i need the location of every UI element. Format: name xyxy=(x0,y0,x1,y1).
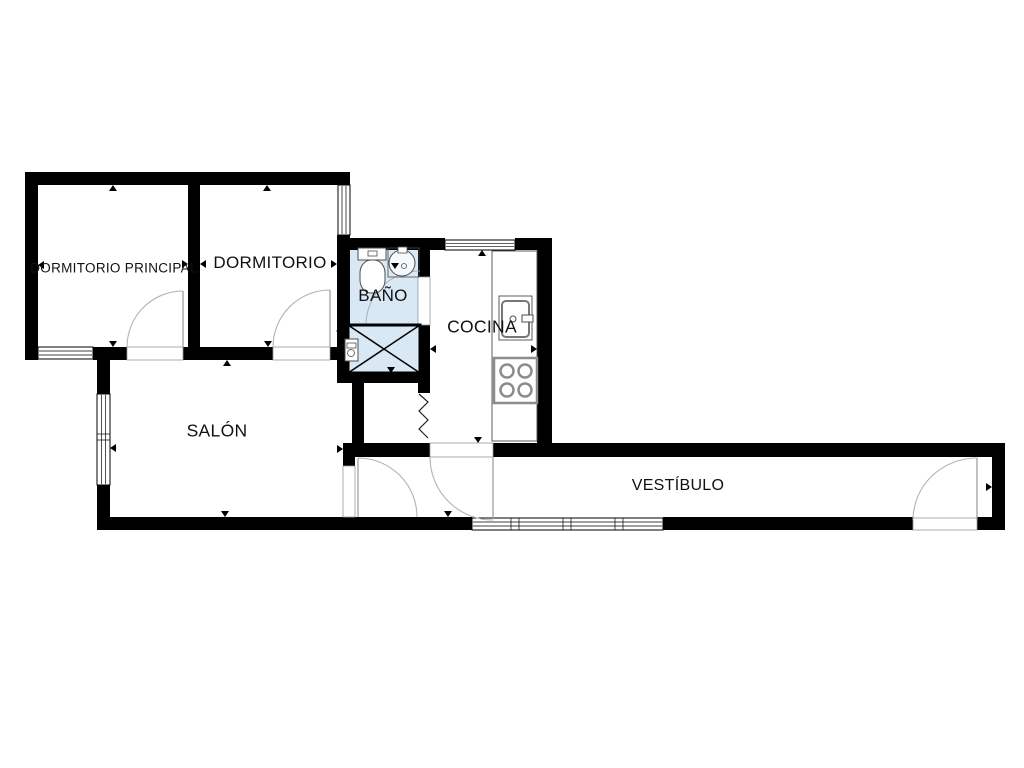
wall-segment xyxy=(25,347,38,360)
wall-marker xyxy=(986,483,992,491)
wall-segment xyxy=(343,443,430,457)
wall-segment xyxy=(97,517,472,530)
wall-segment xyxy=(343,443,355,467)
wall-marker xyxy=(430,345,436,353)
stove-icon xyxy=(494,358,537,403)
wall-segment xyxy=(97,485,110,530)
door-threshold xyxy=(343,466,355,517)
wall-marker xyxy=(109,341,117,347)
door-threshold xyxy=(418,277,430,325)
door-cocina-swing-arc xyxy=(430,457,493,520)
kitchen-counter xyxy=(492,251,537,441)
window-frame xyxy=(338,185,350,235)
door-dormitorio-principal-swing-arc xyxy=(127,291,183,347)
room-label-cocina: COCINA xyxy=(447,317,517,338)
wall-segment xyxy=(25,172,350,185)
wall-segment xyxy=(97,347,110,394)
door-dormitorio-swing-arc xyxy=(273,290,330,347)
wall-marker xyxy=(337,445,343,453)
stove-burner xyxy=(519,384,532,397)
wall-marker xyxy=(263,185,271,191)
door-threshold xyxy=(913,518,977,530)
toilet-tank-icon xyxy=(358,248,386,260)
door-threshold xyxy=(430,443,493,457)
bath-sink-tap xyxy=(398,247,407,253)
wall-marker xyxy=(474,437,482,443)
shower-valve-icon xyxy=(345,339,358,361)
opening-zigzag xyxy=(419,394,428,438)
room-label-salon: SALÓN xyxy=(187,421,248,442)
room-label-bano: BAÑO xyxy=(358,286,407,306)
stove-burner xyxy=(501,365,514,378)
window-frame xyxy=(472,518,663,530)
wall-marker xyxy=(444,511,452,517)
floor-plan-page: DORMITORIO PRINCIPAL DORMITORIO BAÑO COC… xyxy=(0,0,1024,768)
stove-burner xyxy=(501,384,514,397)
window-frame xyxy=(97,394,110,485)
kitchen-sink-tap xyxy=(522,315,533,322)
window-frame xyxy=(38,347,93,359)
room-label-dormitorio: DORMITORIO xyxy=(213,253,326,273)
wall-segment xyxy=(537,238,552,457)
door-threshold xyxy=(273,347,330,360)
wall-marker xyxy=(110,444,116,452)
wall-marker xyxy=(478,250,486,256)
wall-segment xyxy=(418,250,430,277)
door-entrada-swing-arc xyxy=(913,458,977,520)
wall-marker xyxy=(264,341,272,347)
wall-segment xyxy=(663,517,913,530)
wall-marker xyxy=(331,260,337,268)
wall-segment xyxy=(537,443,1005,457)
wall-segment xyxy=(977,517,1005,530)
window-frame xyxy=(445,240,515,250)
wall-marker xyxy=(109,185,117,191)
wall-segment xyxy=(992,443,1005,530)
room-label-dormitorio-principal: DORMITORIO PRINCIPAL xyxy=(30,261,198,276)
door-threshold xyxy=(127,347,183,360)
room-label-vestibulo: VESTÍBULO xyxy=(632,477,725,495)
stove-burner xyxy=(519,365,532,378)
wall-marker xyxy=(200,260,206,268)
door-salon-swing-arc xyxy=(358,458,417,517)
wall-marker xyxy=(223,360,231,366)
floor-plan-svg xyxy=(0,0,1024,768)
wall-marker xyxy=(221,511,229,517)
